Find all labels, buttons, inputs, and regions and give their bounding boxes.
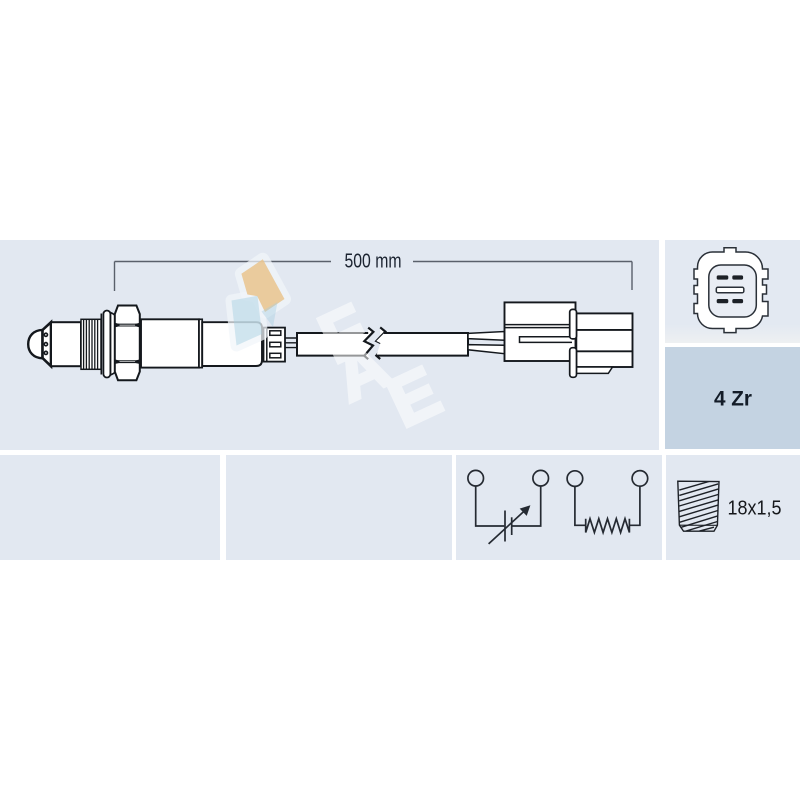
svg-text:500 mm: 500 mm	[345, 250, 402, 273]
svg-text:4 Zr: 4 Zr	[714, 387, 753, 411]
svg-text:18x1,5: 18x1,5	[728, 497, 782, 520]
svg-text:E: E	[376, 352, 451, 442]
